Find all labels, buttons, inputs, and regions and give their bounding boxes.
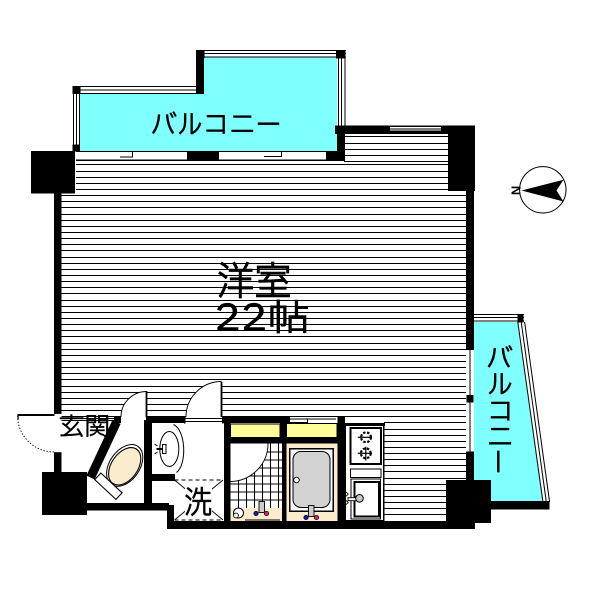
svg-text:N: N	[509, 186, 524, 195]
